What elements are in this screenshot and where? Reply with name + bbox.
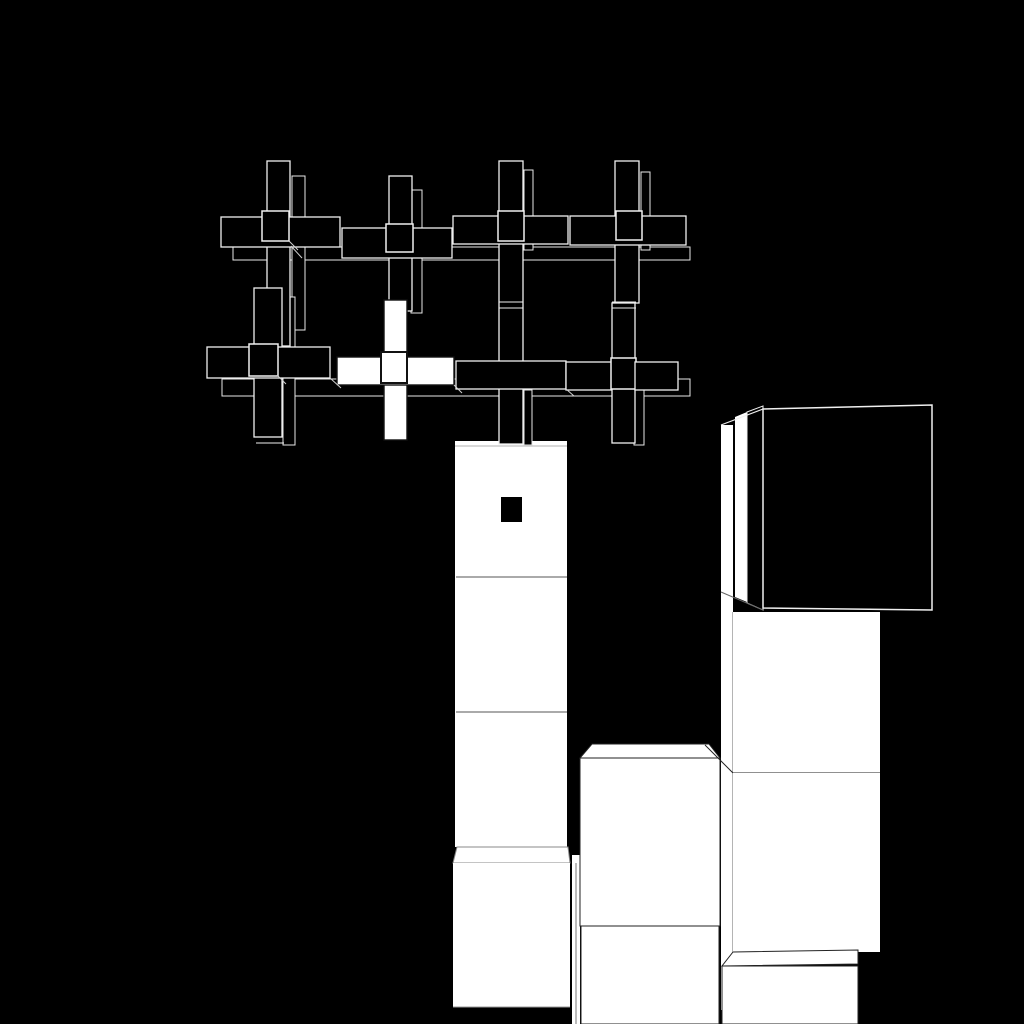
cross-8-center-cube: [611, 358, 636, 389]
cross-2-center-cube: [386, 224, 413, 252]
black-cube-side-face: [747, 406, 763, 610]
side-sliver-2: [735, 412, 747, 602]
tower-bottom-cube-top-face: [453, 847, 570, 863]
cross-4-center-cube: [616, 211, 642, 240]
tower-face-black-dot: [501, 497, 522, 522]
side-sliver-band: [721, 425, 733, 1010]
cross-7-hbar: [456, 361, 566, 389]
cross-6-white-center-cube: [381, 352, 407, 383]
right-column-face-upper: [733, 612, 880, 773]
cross-7-dupe-vbar: [524, 390, 532, 445]
cross-1-center-cube: [262, 211, 289, 241]
cross-5-center-cube: [249, 344, 278, 376]
mid-cube-front-lower: [581, 926, 719, 1024]
cross-3-center-cube: [498, 211, 524, 241]
cross-8-hbar-right: [635, 362, 678, 390]
mid-cube-front-upper: [580, 758, 720, 926]
tower-bottom-cube-front: [453, 863, 570, 1007]
mid-cube-top-face: [580, 744, 720, 758]
cross-7-8-connector: [566, 362, 613, 390]
bottom-right-cube-front: [722, 966, 858, 1024]
bottom-right-cube-top-face: [722, 950, 858, 966]
black-cube-front-face: [763, 405, 932, 610]
right-column-face-lower: [733, 773, 880, 952]
scene-svg: [0, 0, 1024, 1024]
scene-canvas: [0, 0, 1024, 1024]
